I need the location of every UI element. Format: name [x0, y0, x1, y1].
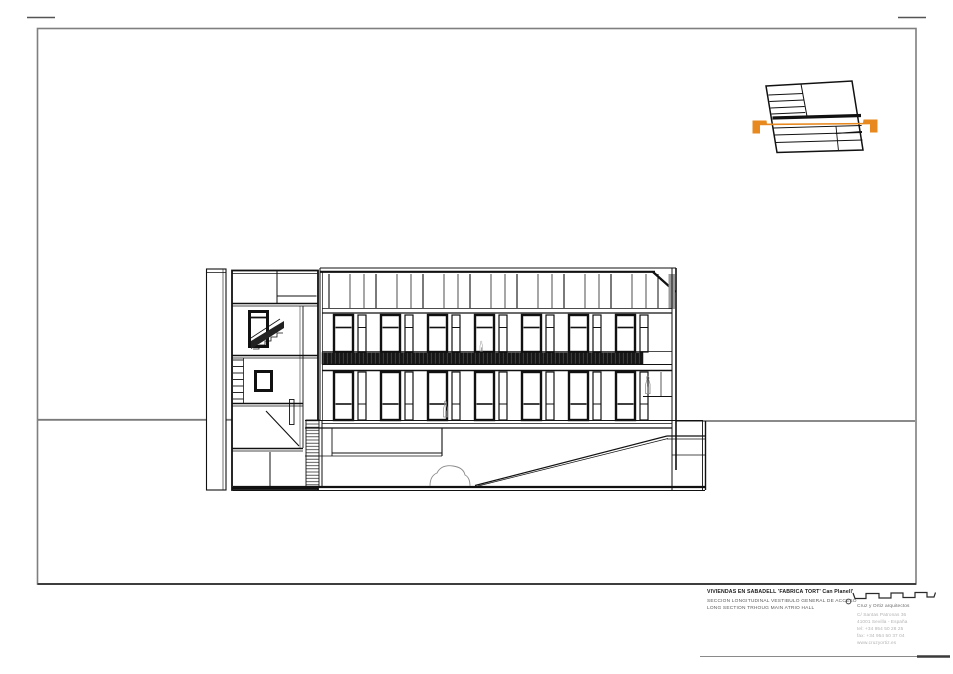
clerestory-mullions — [322, 274, 672, 309]
firm-street: C/ Santas Patronas 36 — [857, 611, 906, 618]
firm-tel: tel: +34 954 50 28 25 — [857, 625, 903, 632]
firm-name: Cruz y Ortiz arquitectos — [857, 604, 910, 609]
building-long-section — [207, 268, 706, 491]
basement-stair-hatch — [306, 420, 319, 487]
firm-city: 41001 Sevilla - España — [857, 618, 907, 625]
drawing-sheet: VIVIENDAS EN SABADELL 'FABRICA TORT' Can… — [0, 0, 953, 674]
site-key-plan — [753, 81, 878, 153]
upper-window-row — [334, 315, 648, 352]
project-title: VIVIENDAS EN SABADELL 'FABRICA TORT' Can… — [707, 589, 853, 595]
section-cut-marker-left — [753, 121, 768, 134]
car-outline — [430, 466, 470, 486]
drawing-title-en: LONG SECTION TRHOUG MAIN ATRIO HALL — [707, 606, 814, 611]
firm-fax: fax: +34 954 50 37 04 — [857, 632, 905, 639]
lower-window-row — [334, 372, 648, 420]
section-left-wall — [207, 269, 227, 490]
architect-logo — [846, 593, 935, 604]
entrance-tower-section — [232, 270, 318, 490]
firm-web: www.cruzyortiz.es — [857, 639, 896, 646]
drawing-title-es: SECCION LONGITUDINAL VESTIBULO GENERAL D… — [707, 599, 857, 604]
facade-elevation — [320, 268, 676, 470]
parking-ramp — [475, 436, 705, 486]
logo-zigzag-icon — [853, 593, 936, 599]
balcony-railing-band — [322, 352, 672, 371]
sheet-graphics — [0, 0, 953, 674]
section-cut-marker-right — [863, 120, 878, 133]
